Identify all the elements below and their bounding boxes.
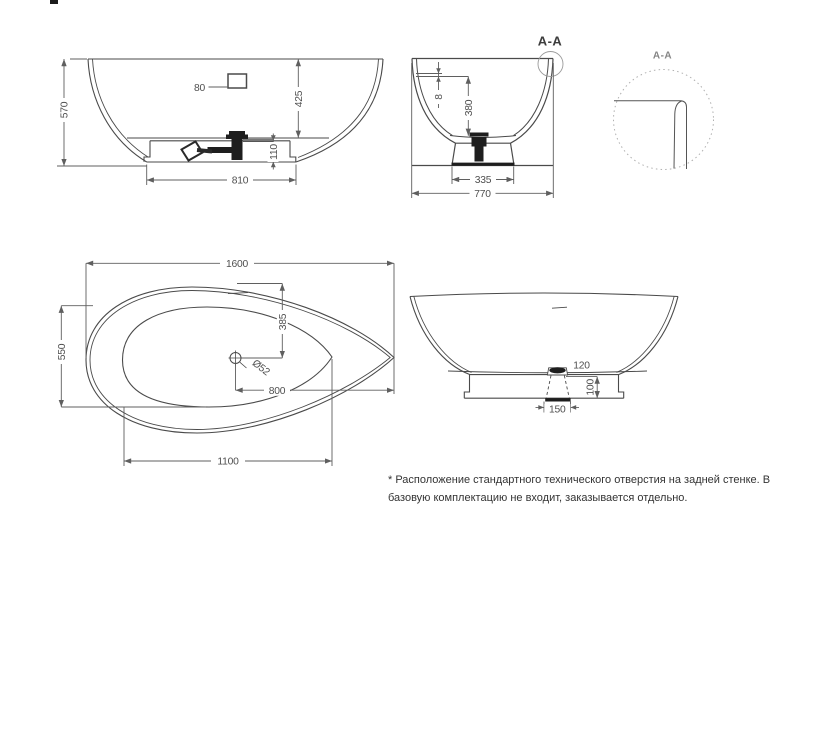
dim-120-value: 120 — [573, 361, 590, 372]
dim-550-extensions — [61, 306, 206, 407]
dim-385-value: 385 — [278, 313, 289, 330]
side-elevation-view: 120 100 150 — [410, 293, 678, 415]
dim-570-value: 570 — [60, 101, 71, 118]
side-wall-inner-lines — [414, 296, 674, 372]
front-elevation-view: 570 80 425 110 810 — [57, 59, 383, 187]
dim-110-value: 110 — [269, 144, 280, 160]
plan-view: 1600 550 385 Ø52 800 1100 — [56, 258, 394, 467]
dim-80-value: 80 — [194, 83, 206, 94]
dim-425-value: 425 — [294, 90, 305, 107]
dim-550-value: 550 — [57, 343, 68, 360]
dim-770-value: 770 — [474, 189, 491, 200]
dim-8-value: 8 — [434, 94, 445, 100]
dim-1600-value: 1600 — [226, 259, 249, 270]
dim-1600-extensions — [86, 263, 394, 394]
section-view: A-A 8 380 335 770 — [412, 34, 563, 201]
dim-800-value: 800 — [269, 386, 286, 397]
dim-1100-value: 1100 — [217, 457, 239, 468]
section-label: A-A — [538, 34, 563, 49]
side-overflow-mark — [552, 307, 567, 308]
side-drain-flange — [549, 367, 565, 373]
dim-100-value: 100 — [586, 379, 597, 396]
side-drain-shaft-hidden — [546, 376, 569, 399]
detail-indicator-circle — [538, 52, 563, 77]
side-base-skirt — [464, 375, 623, 399]
dim-335-value: 335 — [475, 175, 492, 186]
dim-150-value: 150 — [549, 404, 566, 415]
detail-view: A-A — [614, 51, 714, 170]
footnote: * Расположение стандартного технического… — [388, 471, 770, 507]
side-rim-line — [410, 293, 678, 297]
detail-label: A-A — [653, 51, 672, 62]
drain-trap-assembly — [182, 131, 274, 161]
drawing-canvas: 570 80 425 110 810 — [0, 0, 835, 730]
footnote-line-2: базовую комплектацию не входит, заказыва… — [388, 489, 770, 507]
plan-view-dimensions — [61, 263, 394, 466]
plan-basin-outline — [123, 307, 333, 407]
detail-boundary-circle — [614, 70, 714, 170]
technical-hole — [228, 74, 247, 88]
footnote-line-1: * Расположение стандартного технического… — [388, 471, 770, 489]
dim-810-value: 810 — [232, 176, 249, 187]
rim-edge-detail — [614, 101, 687, 169]
technical-drawing-sheet: 570 80 425 110 810 — [0, 0, 835, 730]
dim-8-ticks — [416, 74, 469, 77]
dim-drain-diameter-value: Ø52 — [250, 358, 272, 379]
dim-1100-extensions — [124, 359, 332, 466]
side-wall-outlines — [410, 297, 678, 375]
dim-380-value: 380 — [464, 99, 475, 116]
front-view-dimensions — [57, 59, 298, 185]
